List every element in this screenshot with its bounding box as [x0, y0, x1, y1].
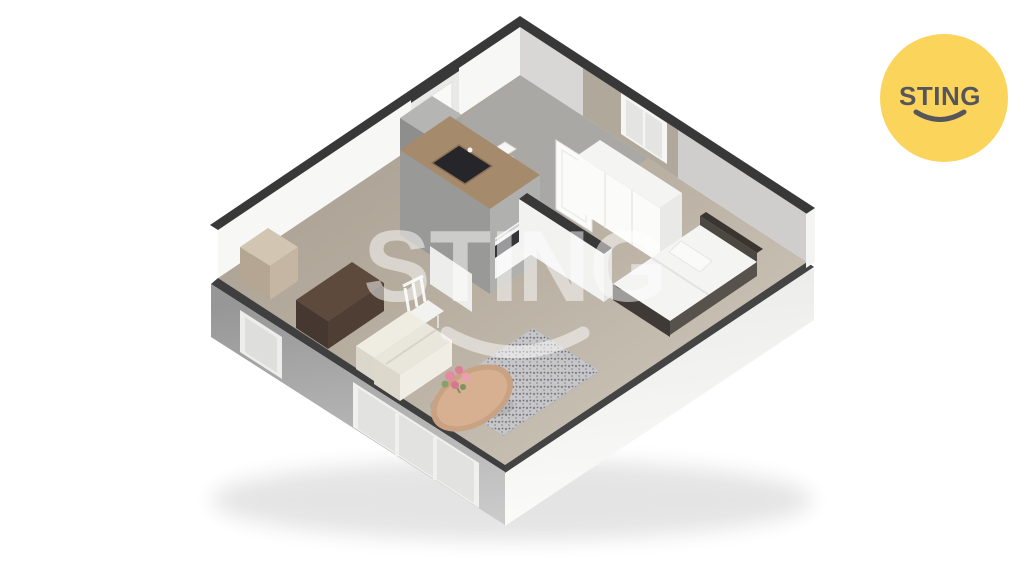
floorplan-canvas: STING STING: [0, 0, 1024, 576]
flower-leaf-1: [442, 381, 449, 388]
watermark-text: STING: [363, 211, 667, 323]
kitchen-faucet: [468, 148, 473, 153]
floorplan-screenshot: STING STING: [0, 0, 1024, 576]
sting-logo: STING: [880, 34, 1008, 162]
logo-text: STING: [899, 81, 981, 111]
flower-bloom-2: [455, 366, 463, 374]
flower-bloom-1: [445, 371, 455, 381]
flower-leaf-2: [460, 384, 466, 390]
exterior-corner-right: [806, 208, 815, 268]
flower-bloom-4: [451, 381, 459, 389]
flower-bloom-3: [462, 373, 471, 382]
